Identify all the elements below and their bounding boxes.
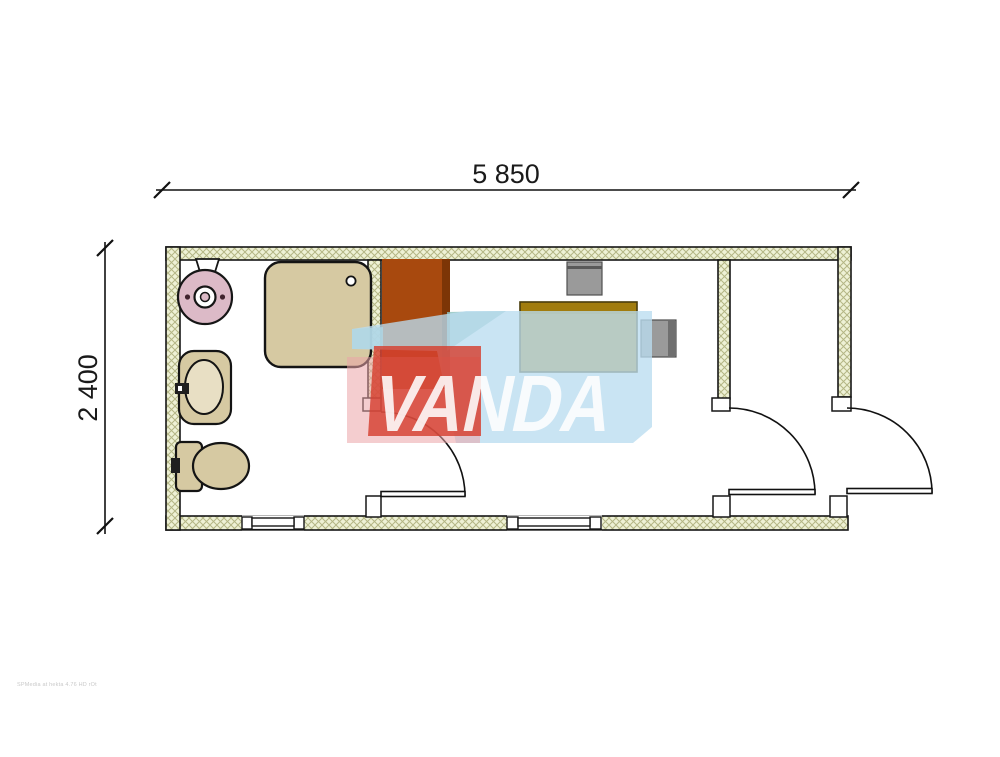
water-heater-dot bbox=[185, 294, 190, 299]
window-office bbox=[507, 516, 602, 531]
window-glazing bbox=[252, 518, 294, 526]
door-jamb bbox=[366, 496, 381, 517]
watermark: VANDA bbox=[347, 311, 652, 448]
water-heater-dot bbox=[220, 294, 225, 299]
height-dimension-label: 2 400 bbox=[73, 354, 103, 422]
floor-plan-canvas: 5 850 2 400 bbox=[0, 0, 1000, 757]
door-jamb bbox=[713, 496, 730, 517]
wall-right bbox=[838, 247, 851, 397]
window-glazing bbox=[518, 518, 590, 526]
dimension-left: 2 400 bbox=[73, 240, 113, 534]
wall-partition-room bbox=[718, 260, 730, 399]
floor-plan-drawing: 5 850 2 400 bbox=[0, 0, 1000, 757]
chair-backrest bbox=[668, 321, 676, 356]
window-jamb bbox=[590, 517, 601, 529]
window-jamb bbox=[294, 517, 304, 529]
window-jamb bbox=[507, 517, 518, 529]
fine-print: SPMedia at hekta 4.76 HD rOt bbox=[17, 682, 97, 688]
width-dimension-label: 5 850 bbox=[472, 159, 540, 189]
door-jamb bbox=[830, 496, 847, 517]
door-leaf bbox=[381, 492, 465, 497]
door-exterior bbox=[847, 408, 932, 494]
door-leaf bbox=[729, 490, 815, 495]
toilet-bowl bbox=[193, 443, 249, 489]
office-chair-top bbox=[567, 262, 602, 295]
window-bathroom bbox=[242, 516, 304, 531]
bathroom-fixtures bbox=[171, 259, 371, 491]
wall-top bbox=[166, 247, 851, 260]
water-heater-ring-center bbox=[201, 293, 210, 302]
door-leaf bbox=[847, 489, 932, 494]
door-jamb bbox=[712, 398, 730, 411]
window-jamb bbox=[242, 517, 252, 529]
watermark-logo-text: VANDA bbox=[366, 359, 622, 448]
door-jamb bbox=[832, 397, 851, 411]
washbasin-tap-detail bbox=[178, 386, 182, 391]
shower-drain bbox=[346, 276, 355, 285]
toilet-flush-valve bbox=[171, 458, 180, 473]
door-swing-arc bbox=[847, 408, 932, 493]
door-room bbox=[729, 408, 815, 495]
door-swing-arc bbox=[729, 408, 815, 494]
dimension-top: 5 850 bbox=[154, 159, 859, 198]
washbasin-bowl bbox=[185, 360, 223, 414]
